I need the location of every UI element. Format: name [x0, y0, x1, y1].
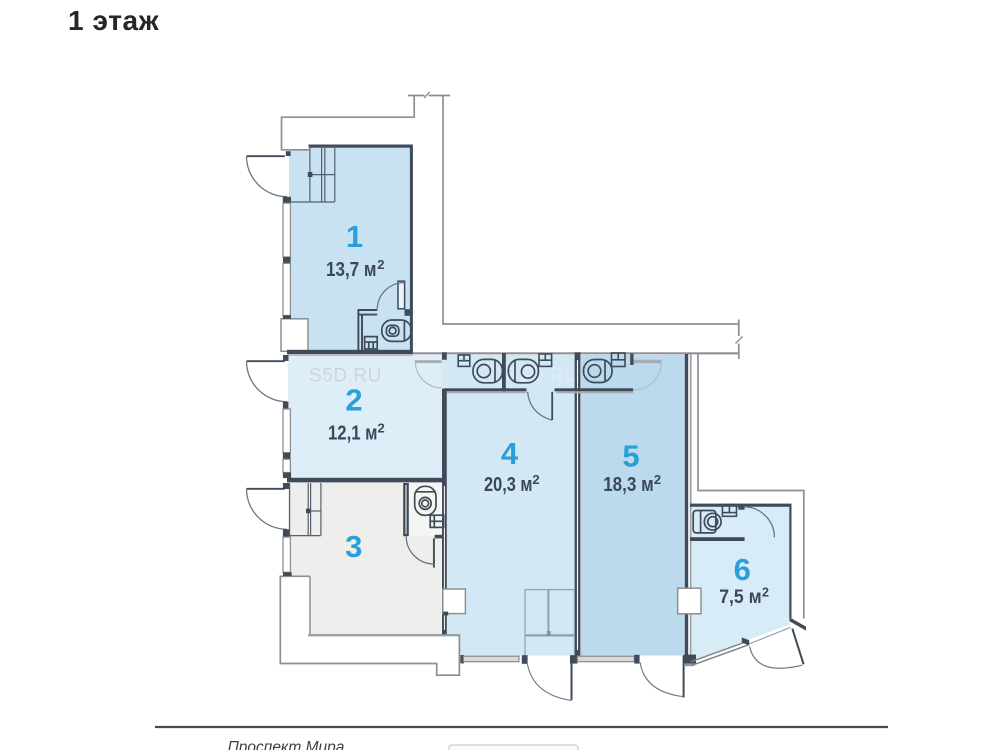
- svg-text:5: 5: [622, 439, 639, 474]
- svg-text:3: 3: [345, 529, 362, 564]
- svg-text:2: 2: [532, 472, 539, 487]
- svg-text:2: 2: [377, 257, 384, 272]
- svg-text:12,1 м: 12,1 м: [328, 423, 378, 445]
- svg-text:1: 1: [346, 219, 363, 254]
- svg-text:2: 2: [654, 472, 661, 487]
- svg-text:18,3 м: 18,3 м: [603, 474, 654, 496]
- svg-text:13,7 м: 13,7 м: [326, 259, 377, 281]
- svg-text:7,5 м: 7,5 м: [719, 587, 762, 608]
- svg-text:2: 2: [762, 586, 769, 600]
- svg-text:20,3 м: 20,3 м: [484, 474, 533, 496]
- svg-text:Проспект Мира: Проспект Мира: [228, 739, 345, 750]
- svg-text:6: 6: [734, 552, 751, 587]
- svg-text:1 этаж: 1 этаж: [68, 5, 160, 36]
- svg-text:2: 2: [378, 421, 385, 436]
- svg-text:4: 4: [501, 436, 519, 471]
- svg-text:2: 2: [345, 383, 362, 418]
